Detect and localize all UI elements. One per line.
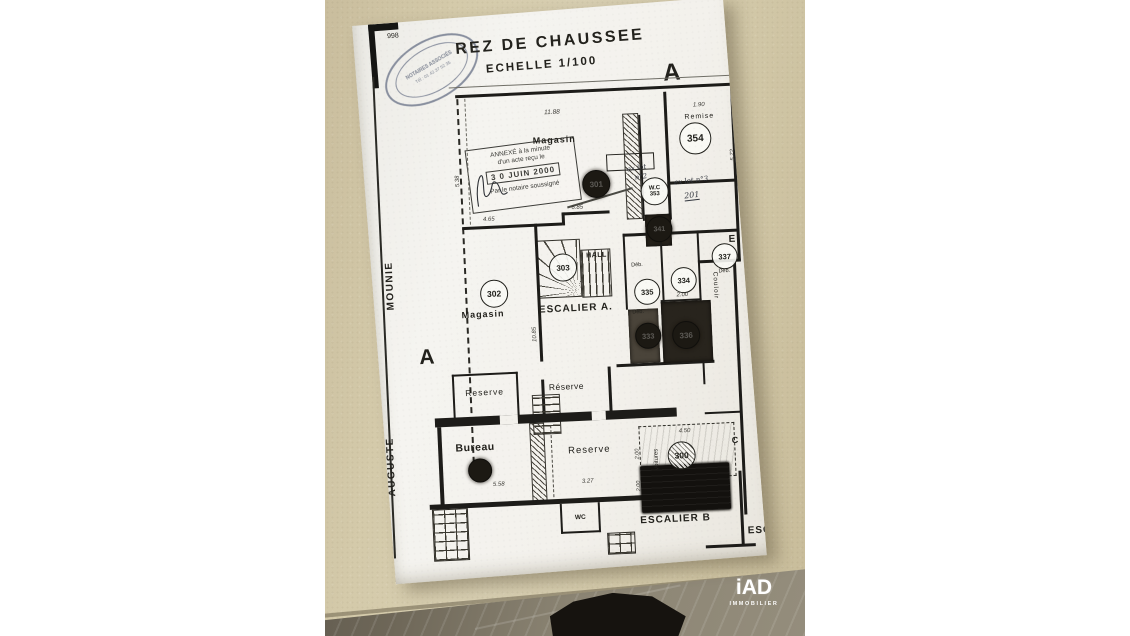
door-gap (592, 411, 606, 421)
room-label-couloir: Couloir (711, 272, 719, 300)
dim-10-85: 10.85 (532, 327, 539, 342)
wall-segment (562, 212, 566, 225)
shopfront-dashed-wall (456, 99, 475, 463)
street-name-mounie: MOUNIE (385, 261, 397, 310)
dim-1-90: 1.90 (693, 102, 705, 109)
dim-5-38: 5.38 (455, 175, 462, 187)
room-number-334: 334 (670, 267, 697, 294)
room-number-354: 354 (679, 122, 712, 155)
iad-logo: iAD IMMOBILIER (724, 576, 784, 607)
wall-segment (561, 530, 601, 534)
shopfront-inner-dashes (464, 99, 471, 225)
photo-of-floor-plan: 998 NOTAIRES ASSOCIÉS Tél : 01 42 37 52 … (0, 0, 1130, 636)
label-deb-3: Déb. (632, 310, 644, 316)
room-label-escalier-b: ESCALIER B (640, 513, 711, 526)
section-letter-c: C (732, 436, 739, 445)
wall-segment (608, 366, 613, 412)
iad-logo-text: iAD (724, 576, 784, 600)
wall-segment (706, 543, 756, 548)
label-deb-2: Déb. (631, 263, 643, 269)
dim-6-85: 6.85 (571, 205, 583, 212)
room-number-353: W.C 353 (640, 177, 669, 206)
wall-segment (562, 210, 610, 215)
dim-2-00-g1: 2.00 (635, 448, 641, 459)
dim-4-50: 4.50 (679, 428, 691, 435)
small-stair-grid (607, 532, 636, 555)
room-label-wc-bottom: WC (575, 515, 586, 522)
iad-logo-subtitle: IMMOBILIER (724, 601, 784, 607)
wall-segment (452, 372, 518, 377)
wall-segment (598, 502, 601, 532)
wc-353-number: 353 (650, 191, 660, 197)
room-label-escalier-a: ESCALIER A. (539, 302, 613, 315)
dim-4-65: 4.65 (483, 217, 495, 224)
room-number-bureau (468, 458, 493, 483)
wall-segment (516, 372, 520, 417)
dim-5-58: 5.58 (493, 481, 505, 488)
room-label-escal: ESCAL (748, 525, 767, 537)
room-label-reserve-left: Reserve (465, 387, 504, 397)
handwriting-ex-lot-3: ex lot n°3 (674, 176, 709, 187)
room-label-magasin-top: Magasin (533, 135, 576, 146)
room-label-reserve-mid: Réserve (549, 382, 585, 392)
handwriting-201: 201 (684, 191, 700, 202)
wall-segment (705, 411, 742, 415)
door-gap (500, 415, 518, 425)
wall-segment (623, 229, 740, 237)
label-voitures: Voitures (653, 449, 660, 471)
label-deb-1: Déb. (718, 269, 730, 275)
wall-segment (462, 223, 562, 231)
plan-drawing: MOUNIE AUGUSTE A (362, 3, 759, 579)
wall-segment (437, 427, 445, 505)
dim-2-00-334: 2.00 (676, 292, 688, 299)
hatched-divider (529, 423, 548, 504)
room-label-reserve-right: Reserve (568, 445, 611, 456)
wall-segment (452, 375, 456, 420)
dashed-partition (550, 425, 554, 497)
section-letter-a-left: A (419, 346, 435, 368)
room-number-335: 335 (634, 278, 661, 305)
room-label-bureau: Bureau (455, 442, 495, 454)
wall-segment (560, 504, 563, 534)
dim-3-27: 3.27 (582, 478, 594, 485)
room-number-302: 302 (480, 279, 509, 308)
wall-segment (623, 234, 628, 310)
floor-plan-document: 998 NOTAIRES ASSOCIÉS Tél : 01 42 37 52 … (352, 0, 767, 584)
room-label-magasin-302: Magasin (461, 309, 504, 320)
room-label-remise: Remise (684, 113, 714, 121)
room-label-hall: HALL (586, 252, 607, 260)
photo-area: 998 NOTAIRES ASSOCIÉS Tél : 01 42 37 52 … (325, 0, 805, 636)
dim-2-00-g2: 2.00 (637, 480, 643, 491)
bottom-stair-grid (432, 508, 470, 562)
dim-11-88: 11.88 (544, 110, 560, 117)
street-name-auguste: AUGUSTE (386, 437, 399, 497)
